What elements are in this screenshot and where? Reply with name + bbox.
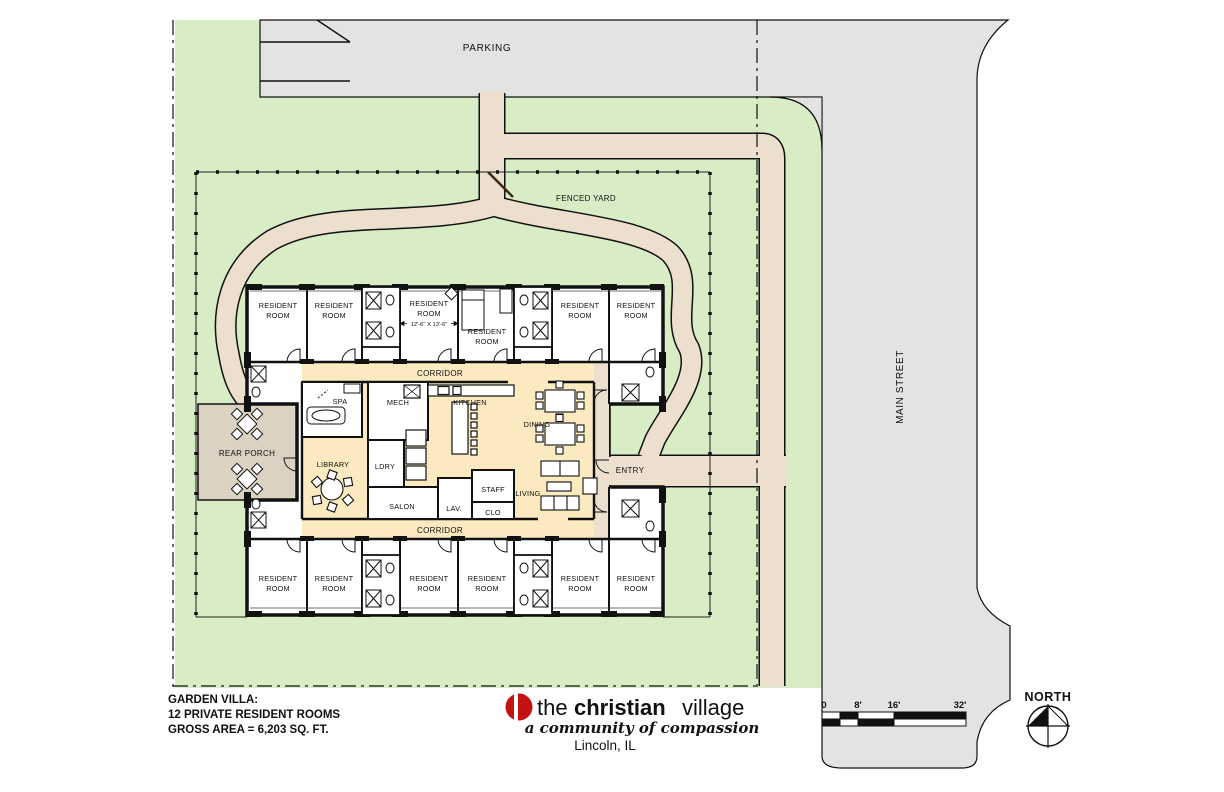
resident-room-label: ROOM	[266, 311, 290, 320]
title-line3: GROSS AREA = 6,203 SQ. FT.	[168, 724, 329, 736]
logo-word-village: village	[682, 695, 744, 720]
building	[244, 284, 666, 617]
staff-label: STAFF	[481, 485, 505, 494]
logo: the christian village a community of com…	[506, 692, 760, 753]
resident-room-label: ROOM	[417, 309, 441, 318]
scale-8: 8'	[854, 700, 862, 711]
floor-plan-sheet: PARKING FENCED YARD MAIN STREET ENTRY RE…	[0, 0, 1224, 792]
ldry-label: LDRY	[375, 462, 395, 471]
dining-label: DINING	[524, 420, 551, 429]
scale-32: 32'	[954, 700, 967, 711]
kitchen-label: KITCHEN	[453, 398, 486, 407]
resident-room-label: RESIDENT	[468, 574, 507, 583]
title-line2: 12 PRIVATE RESIDENT ROOMS	[168, 709, 340, 721]
rear-porch-label: REAR PORCH	[219, 449, 275, 458]
resident-room-label: ROOM	[417, 584, 441, 593]
resident-room-label: ROOM	[624, 584, 648, 593]
scale-0: 0	[821, 700, 826, 711]
parking-label: PARKING	[463, 43, 511, 54]
logo-word-christian: christian	[574, 695, 666, 720]
logo-tagline: a community of compassion	[525, 719, 760, 737]
corridor-label: CORRIDOR	[417, 369, 463, 378]
library-label: LIBRARY	[317, 460, 350, 469]
north-label: NORTH	[1025, 690, 1072, 704]
resident-room-label: ROOM	[568, 584, 592, 593]
resident-room-label: RESIDENT	[561, 574, 600, 583]
title-line1: GARDEN VILLA:	[168, 694, 258, 706]
resident-room-label: ROOM	[624, 311, 648, 320]
entry-label: ENTRY	[616, 466, 645, 475]
resident-room-label: ROOM	[322, 584, 346, 593]
room-dimension-label: 12'-6" X 13'-6"	[411, 322, 448, 328]
living-label: LIVING	[515, 489, 540, 498]
resident-room-label: ROOM	[322, 311, 346, 320]
resident-room-label: RESIDENT	[315, 301, 354, 310]
logo-icon	[506, 694, 533, 721]
logo-location: Lincoln, IL	[574, 738, 636, 753]
clo-label: CLO	[485, 508, 501, 517]
logo-word-the: the	[537, 695, 568, 720]
resident-room-label: RESIDENT	[259, 301, 298, 310]
resident-room-label: RESIDENT	[410, 299, 449, 308]
mech-label: MECH	[387, 398, 409, 407]
north-arrow: NORTH	[1025, 690, 1072, 748]
resident-room-label: RESIDENT	[561, 301, 600, 310]
lav-label: LAV.	[446, 504, 461, 513]
resident-room-label: ROOM	[266, 584, 290, 593]
resident-room-label: ROOM	[568, 311, 592, 320]
salon-label: SALON	[389, 502, 415, 511]
resident-room-label: RESIDENT	[315, 574, 354, 583]
main-street-label: MAIN STREET	[895, 350, 906, 424]
site-plan-drawing: PARKING FENCED YARD MAIN STREET ENTRY RE…	[0, 0, 1224, 792]
spa-label: SPA	[333, 397, 348, 406]
resident-room-label: RESIDENT	[259, 574, 298, 583]
title-block: GARDEN VILLA: 12 PRIVATE RESIDENT ROOMS …	[168, 694, 340, 736]
resident-room-label: RESIDENT	[617, 301, 656, 310]
resident-room-label: RESIDENT	[468, 327, 507, 336]
corridor-label: CORRIDOR	[417, 526, 463, 535]
fenced-yard-label: FENCED YARD	[556, 194, 616, 203]
resident-room-label: ROOM	[475, 337, 499, 346]
resident-room-label: RESIDENT	[410, 574, 449, 583]
resident-room-label: RESIDENT	[617, 574, 656, 583]
scale-16: 16'	[888, 700, 901, 711]
resident-room-label: ROOM	[475, 584, 499, 593]
